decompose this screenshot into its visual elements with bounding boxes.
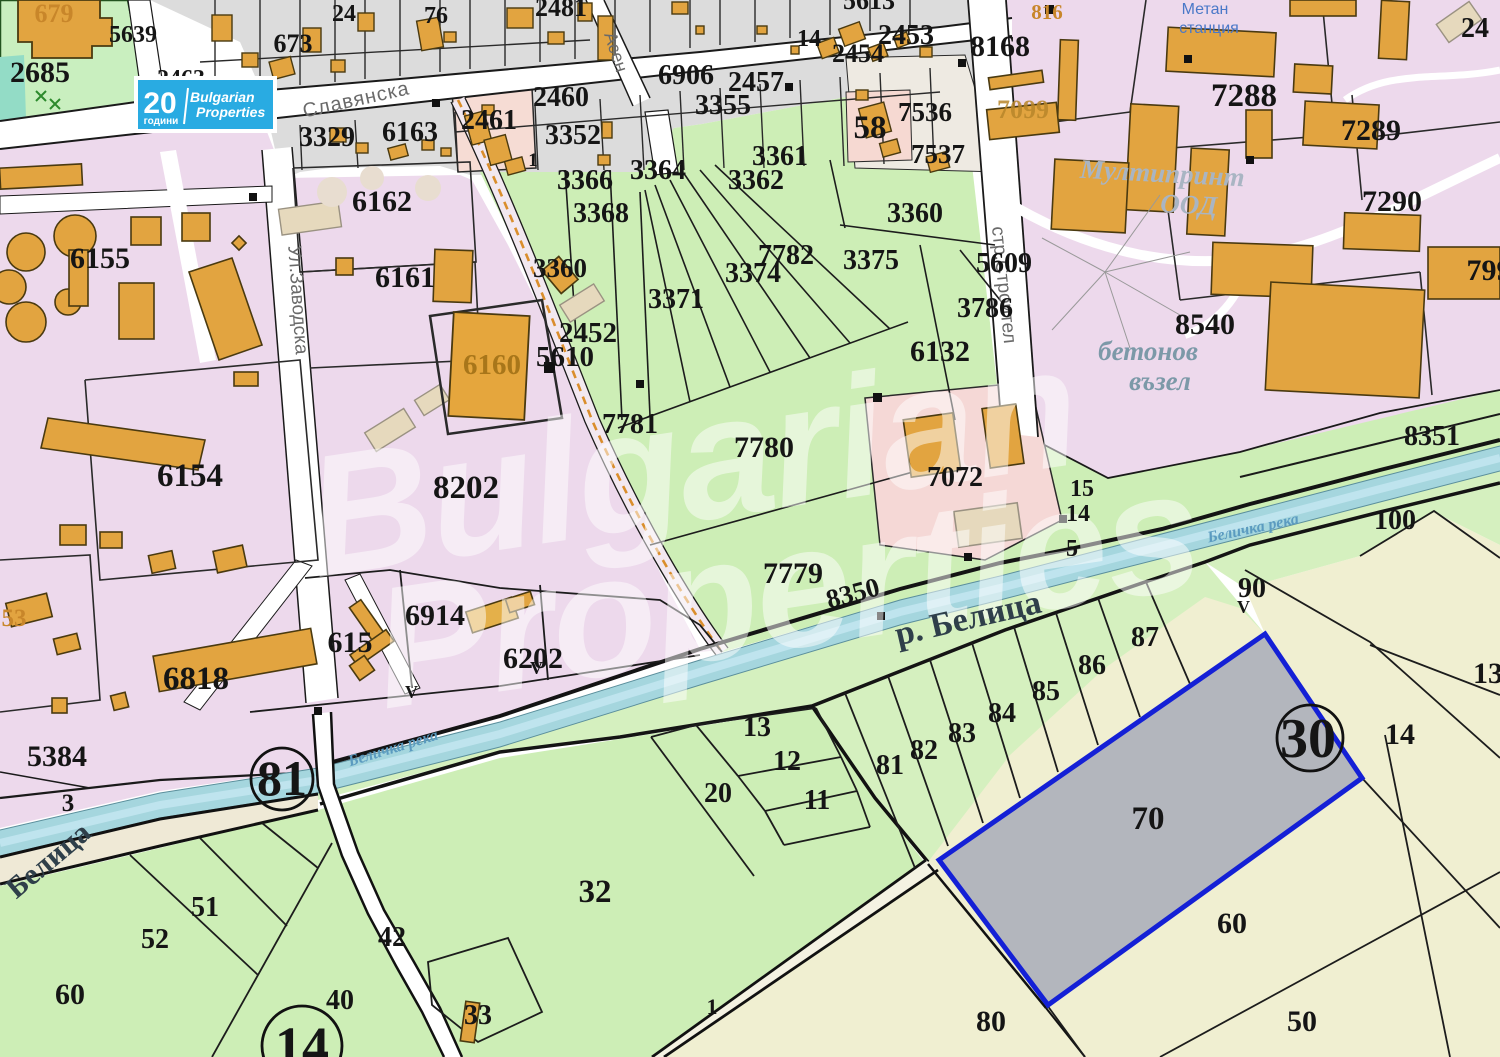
svg-text:6162: 6162	[352, 185, 412, 218]
svg-text:14: 14	[275, 1016, 329, 1057]
svg-text:5639: 5639	[109, 22, 157, 48]
svg-text:24: 24	[1461, 13, 1489, 44]
svg-text:възел: възел	[1129, 366, 1191, 396]
svg-text:3786: 3786	[957, 293, 1013, 324]
svg-text:60: 60	[55, 978, 85, 1011]
svg-text:2685: 2685	[10, 56, 70, 89]
svg-text:8202: 8202	[433, 470, 499, 506]
svg-text:11: 11	[804, 785, 830, 816]
svg-text:70: 70	[1132, 801, 1165, 837]
svg-text:7780: 7780	[734, 431, 794, 464]
svg-text:6160: 6160	[463, 349, 521, 381]
svg-text:50: 50	[1287, 1005, 1317, 1038]
svg-text:32: 32	[579, 874, 612, 910]
svg-text:7537: 7537	[911, 139, 965, 169]
svg-text:5613: 5613	[843, 0, 895, 15]
svg-text:13: 13	[743, 712, 771, 743]
svg-text:15: 15	[1070, 476, 1094, 502]
svg-text:14: 14	[797, 26, 821, 52]
svg-text:години: години	[144, 116, 179, 127]
svg-text:83: 83	[948, 718, 976, 749]
svg-text:80: 80	[976, 1005, 1006, 1038]
svg-text:3352: 3352	[545, 120, 601, 151]
svg-text:87: 87	[1131, 622, 1159, 653]
svg-text:бетонов: бетонов	[1098, 336, 1198, 366]
svg-text:90: 90	[1238, 573, 1266, 604]
svg-text:14: 14	[1385, 718, 1415, 751]
svg-text:6155: 6155	[70, 242, 130, 275]
svg-text:8168: 8168	[970, 30, 1030, 63]
svg-text:6161: 6161	[375, 261, 435, 294]
svg-text:615: 615	[328, 626, 373, 659]
svg-text:58: 58	[854, 110, 887, 146]
svg-text:60: 60	[1217, 907, 1247, 940]
svg-text:ООД: ООД	[1160, 188, 1220, 221]
svg-text:2453: 2453	[878, 20, 934, 51]
svg-text:6154: 6154	[157, 458, 223, 494]
svg-text:V: V	[405, 682, 418, 702]
svg-text:3: 3	[62, 790, 75, 817]
svg-text:82: 82	[910, 735, 938, 766]
svg-text:Bulgarian: Bulgarian	[190, 89, 255, 105]
svg-text:100: 100	[1374, 505, 1416, 536]
svg-text:2461: 2461	[461, 105, 517, 136]
svg-text:5609: 5609	[976, 248, 1032, 279]
svg-text:84: 84	[988, 698, 1016, 729]
svg-text:станция: станция	[1179, 20, 1239, 37]
svg-text:679: 679	[35, 0, 74, 28]
svg-text:33: 33	[464, 1000, 492, 1031]
svg-text:1: 1	[707, 994, 718, 1019]
svg-text:5: 5	[1066, 536, 1078, 562]
svg-text:13: 13	[1473, 657, 1500, 690]
svg-text:3362: 3362	[728, 165, 784, 196]
svg-text:2460: 2460	[533, 82, 589, 113]
svg-text:6163: 6163	[382, 117, 438, 148]
svg-text:81: 81	[257, 750, 307, 806]
svg-text:42: 42	[378, 922, 406, 953]
svg-text:7288: 7288	[1211, 78, 1277, 114]
svg-text:30: 30	[1280, 708, 1336, 770]
svg-text:3366: 3366	[557, 165, 613, 196]
svg-text:40: 40	[326, 985, 354, 1016]
svg-text:3374: 3374	[725, 258, 781, 289]
svg-text:6818: 6818	[163, 661, 229, 697]
svg-text:85: 85	[1032, 676, 1060, 707]
svg-text:3355: 3355	[695, 90, 751, 121]
svg-text:2454: 2454	[832, 39, 884, 68]
svg-text:7072: 7072	[927, 462, 983, 493]
svg-text:1: 1	[528, 150, 538, 171]
svg-text:53: 53	[2, 605, 27, 632]
svg-text:6906: 6906	[658, 60, 714, 91]
svg-text:816: 816	[1031, 0, 1063, 24]
svg-text:81: 81	[876, 750, 904, 781]
svg-text:Properties: Properties	[196, 104, 265, 120]
svg-text:5384: 5384	[27, 740, 87, 773]
svg-text:3375: 3375	[843, 245, 899, 276]
svg-text:7099: 7099	[997, 95, 1049, 124]
svg-text:12: 12	[773, 746, 801, 777]
svg-text:51: 51	[191, 892, 219, 923]
svg-text:3360: 3360	[887, 198, 943, 229]
svg-text:20: 20	[704, 778, 732, 809]
svg-text:52: 52	[141, 924, 169, 955]
svg-text:799: 799	[1467, 254, 1500, 287]
svg-text:7290: 7290	[1362, 185, 1422, 218]
svg-text:Метан: Метан	[1182, 1, 1229, 18]
svg-text:3364: 3364	[630, 155, 686, 186]
svg-text:76: 76	[424, 3, 448, 29]
svg-text:3368: 3368	[573, 198, 629, 229]
svg-text:24: 24	[332, 1, 356, 27]
svg-text:7536: 7536	[898, 97, 952, 127]
svg-text:2481: 2481	[535, 0, 587, 22]
svg-text:14: 14	[1066, 501, 1090, 527]
svg-text:673: 673	[274, 29, 313, 58]
svg-text:6132: 6132	[910, 335, 970, 368]
svg-text:86: 86	[1078, 650, 1106, 681]
svg-text:7781: 7781	[602, 409, 658, 440]
svg-text:3371: 3371	[648, 284, 704, 315]
svg-text:3360: 3360	[533, 253, 587, 283]
svg-text:8351: 8351	[1404, 421, 1460, 452]
svg-text:6914: 6914	[405, 599, 465, 632]
svg-text:7779: 7779	[763, 557, 823, 590]
svg-text:5610: 5610	[536, 341, 594, 373]
svg-text:7289: 7289	[1341, 114, 1401, 147]
svg-text:6202: 6202	[503, 642, 563, 675]
svg-text:3329: 3329	[299, 122, 355, 153]
